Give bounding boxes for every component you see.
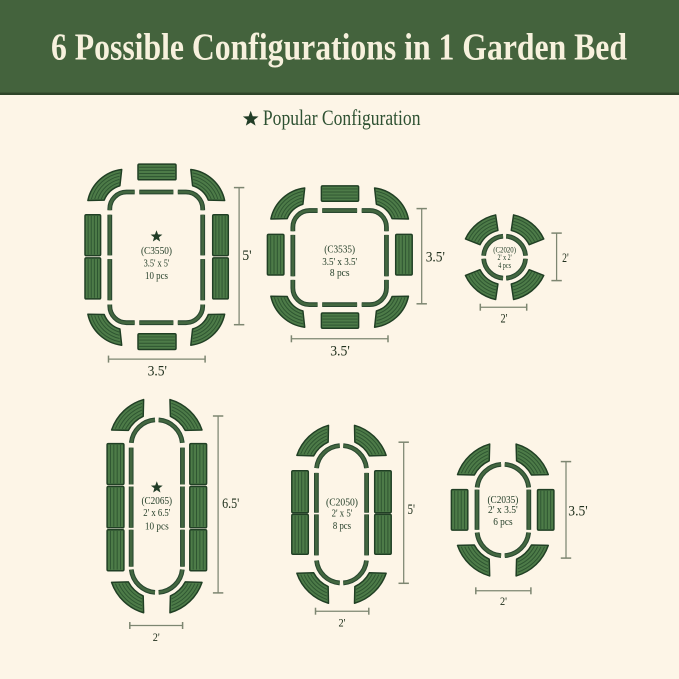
- svg-text:2' x 3.5': 2' x 3.5': [488, 504, 518, 516]
- svg-text:3.5': 3.5': [148, 363, 168, 379]
- svg-text:3.5': 3.5': [568, 504, 587, 520]
- svg-text:(C2065): (C2065): [142, 495, 173, 507]
- svg-text:5': 5': [242, 248, 251, 264]
- svg-text:6 pcs: 6 pcs: [493, 516, 512, 528]
- svg-text:2' x 5': 2' x 5': [332, 507, 353, 519]
- svg-text:3.5': 3.5': [426, 250, 445, 266]
- svg-text:10 pcs: 10 pcs: [145, 270, 168, 282]
- svg-text:2' x 6.5': 2' x 6.5': [143, 507, 170, 519]
- svg-text:2': 2': [500, 594, 507, 608]
- svg-text:(C3535): (C3535): [324, 243, 355, 255]
- svg-text:5': 5': [408, 502, 416, 518]
- svg-text:(C3550): (C3550): [141, 245, 172, 257]
- svg-text:3.5' x 3.5': 3.5' x 3.5': [322, 256, 357, 268]
- svg-text:2': 2': [339, 616, 346, 630]
- svg-text:2': 2': [153, 630, 160, 644]
- svg-text:8 pcs: 8 pcs: [330, 267, 350, 279]
- svg-text:3.5' x 5': 3.5' x 5': [144, 257, 170, 269]
- svg-text:2': 2': [562, 250, 569, 265]
- svg-text:Popular Configuration: Popular Configuration: [263, 105, 421, 130]
- svg-text:8 pcs: 8 pcs: [333, 520, 351, 532]
- svg-text:6 Possible Configurations in 1: 6 Possible Configurations in 1 Garden Be…: [51, 27, 627, 69]
- svg-text:4 pcs: 4 pcs: [498, 261, 511, 270]
- svg-text:2': 2': [501, 310, 508, 325]
- svg-text:10 pcs: 10 pcs: [145, 521, 169, 533]
- svg-text:3.5': 3.5': [330, 343, 350, 359]
- svg-text:6.5': 6.5': [222, 496, 239, 512]
